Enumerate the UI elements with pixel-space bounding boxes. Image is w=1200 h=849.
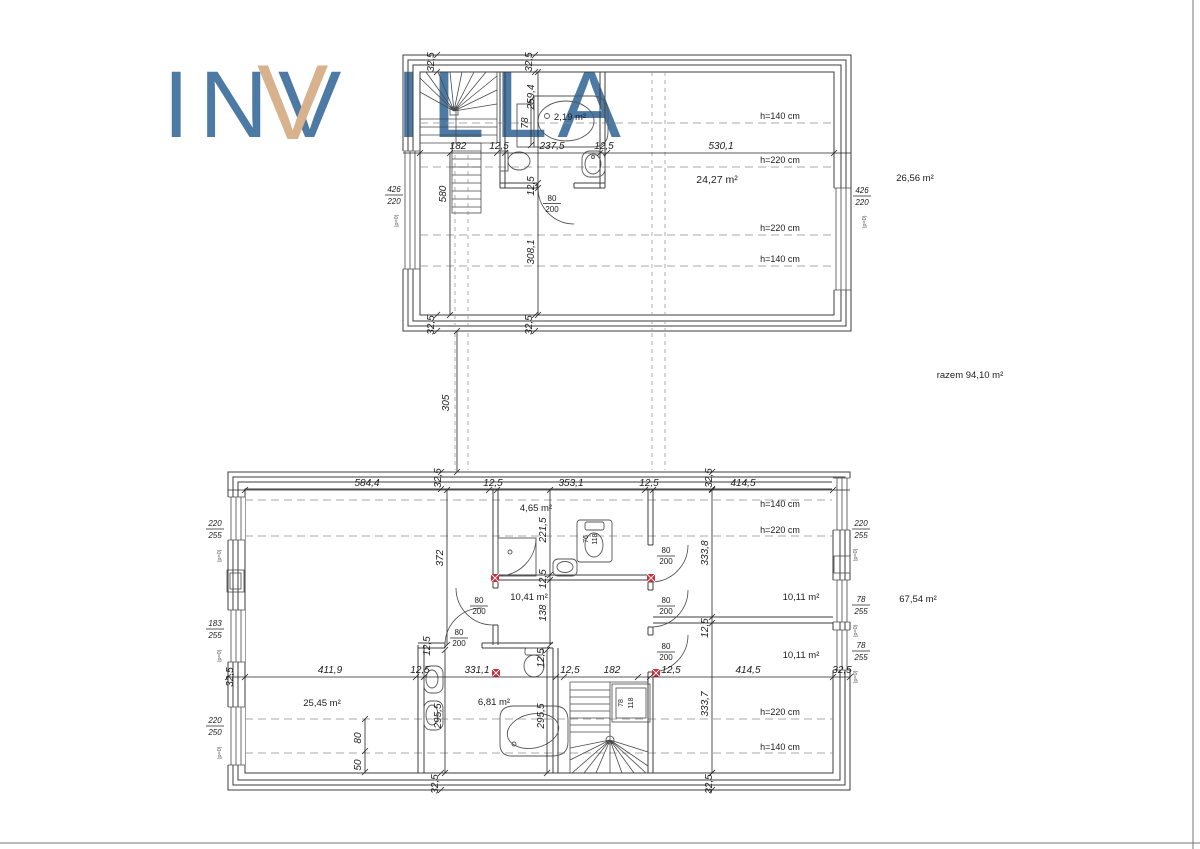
dim-wall-bot-right: 32,5 [524,315,535,335]
sink-top-bath [553,559,577,576]
wr2-h: 255 [853,653,868,662]
dim-12-5-h1: 12,5 [538,569,549,589]
area-lower-total: 67,54 m² [899,594,937,605]
d1-w: 80 [475,596,484,605]
lower-windows-right [832,478,851,670]
dim-333-7: 333,7 [700,691,711,716]
dim-32-5-tl: 32,5 [433,468,444,488]
lower-windows-left [226,497,245,765]
wl1-h: 255 [207,631,222,640]
wr1-w: 78 [857,595,866,604]
dim-333-8: 333,8 [700,540,711,565]
wr1-h: 255 [853,607,868,616]
win-l-w: 426 [387,185,401,194]
wr2-p: (p=0) [853,670,859,683]
lheight-1: h=140 cm [760,499,800,509]
dim-308-1: 308,1 [526,239,537,264]
area-living: 25,45 m² [303,698,341,709]
wr0-w: 220 [853,519,868,528]
d3-w: 80 [662,546,671,555]
shower [498,538,536,576]
dim-12-5-m1: 12,5 [410,665,430,676]
door-height: 200 [545,205,559,214]
wl2-w: 220 [207,716,222,725]
lheight-4: h=140 cm [760,742,800,752]
dim-237-5: 237,5 [538,141,564,152]
lheight-3: h=220 cm [760,707,800,717]
dim-78-tub: 78 [520,117,531,129]
d5-h: 200 [659,653,673,662]
height-label-4: h=140 cm [760,254,800,264]
d5-w: 80 [662,642,671,651]
upper-bathroom-walls [500,72,605,188]
dim-12-5: 12,5 [489,141,509,152]
red-markers [491,574,660,677]
d3-h: 200 [659,557,673,566]
dim-331-1: 331,1 [464,665,489,676]
win-l-h: 220 [386,197,401,206]
dim-12-5-h2: 12,5 [700,618,711,638]
upper-height-lines [420,123,834,266]
lower-win-right-labels: 220 255 (p=0) 78 255 (p=0) 78 255 (p=0) [852,519,870,684]
dim-80: 80 [353,732,364,744]
d2-h: 200 [452,639,466,648]
dim-353-1: 353,1 [558,478,583,489]
area-room2: 10,11 m² [783,650,820,661]
plans-connector: 305 razem 94,10 m² [441,328,1003,475]
dim-295-5-b: 295,5 [536,703,547,729]
total-area-label: razem 94,10 m² [937,370,1004,381]
d2-w: 80 [455,628,464,637]
area-bath-top: 4,65 m² [520,503,552,514]
dim-182: 182 [450,141,467,152]
dim-12-5-bw1: 12,5 [422,636,433,656]
lower-floor-plan: 584,4 12,5 353,1 12,5 414,5 32,5 32,5 22… [206,468,937,794]
area-bath-bottom: 6,81 m² [478,697,510,708]
dim-32-5-br: 32,5 [704,774,715,794]
upper-floor-plan: 32,5 32,5 259,4 78 2,19 m² 182 12,5 237,… [385,52,934,335]
dim-305: 305 [441,394,452,411]
wr2-w: 78 [857,641,866,650]
upper-window-left-label: 426 220 (p=0) [385,185,403,228]
win-r-h: 220 [854,198,869,207]
dim-12-5-bw2: 12,5 [536,648,547,668]
wl2-p: (p=0) [217,746,223,759]
d1-h: 200 [472,607,486,616]
upper-dimensions [403,52,851,334]
wl2-h: 250 [207,728,222,737]
area-room1: 10,11 m² [783,592,820,603]
dim-32-5-tr: 32,5 [704,468,715,488]
dim-32-5-left: 32,5 [225,667,236,687]
wl0-h: 255 [207,531,222,540]
dim-wall-bot-left: 32,5 [426,315,437,335]
area-upper-bath: 2,19 m² [554,112,586,123]
dim-12-5-t2: 12,5 [639,478,659,489]
win-l-p0: (p=0) [394,214,400,227]
area-attic: 24,27 m² [696,174,738,186]
win-r-p0: (p=0) [862,215,868,228]
dim-580: 580 [438,185,449,202]
door-labels: 80 200 80 200 80 200 80 200 80 200 [450,546,675,662]
dim-372: 372 [435,549,446,566]
dim-wall-top-right: 32,5 [524,52,535,72]
upper-window-right [833,188,851,290]
dim-414-5-t: 414,5 [730,478,755,489]
wl1-p: (p=0) [217,649,223,662]
d4-w: 80 [662,596,671,605]
floorplan-sheet: IN V V ILLA [0,0,1200,849]
d4-h: 200 [659,607,673,616]
dim-414-5-m: 414,5 [735,665,760,676]
area-upper-total: 26,56 m² [896,173,934,184]
dim-wall-top-left: 32,5 [426,52,437,72]
wl1-w: 183 [208,619,222,628]
upper-window-left [401,151,420,269]
wr0-p: (p=0) [853,548,859,561]
wl0-p: (p=0) [217,549,223,562]
height-label-1: h=140 cm [760,111,800,121]
floorplan-drawing: 32,5 32,5 259,4 78 2,19 m² 182 12,5 237,… [0,0,1200,849]
toilet-w: 76 [583,535,590,543]
dim-295-5-a: 295,5 [433,703,444,729]
dim-50: 50 [353,759,364,771]
lower-win-left-labels: 220 255 (p=0) 183 255 (p=0) 220 250 (p=0… [206,519,224,760]
win-r-w: 426 [855,186,869,195]
dim-32-5-m: 32,5 [832,665,852,676]
dim-12-5-m3: 12,5 [661,665,681,676]
dim-32-5-bl: 32,5 [430,774,441,794]
dim-182-l: 182 [604,665,621,676]
wr0-h: 255 [853,531,868,540]
closet-h: 118 [628,697,635,708]
closet-w: 78 [618,699,625,707]
area-hall: 10,41 m² [510,592,548,603]
dim-12-5-t1: 12,5 [483,478,503,489]
wr1-p: (p=0) [853,624,859,637]
lheight-2: h=220 cm [760,525,800,535]
dim-12-5-m2: 12,5 [560,665,580,676]
height-label-3: h=220 cm [760,223,800,233]
dim-411-9: 411,9 [318,665,343,676]
upper-sink [582,151,605,177]
height-label-2: h=220 cm [760,155,800,165]
dim-138: 138 [538,604,549,621]
dim-12-5b: 12,5 [594,141,614,152]
upper-window-right-label: 426 220 (p=0) [853,186,871,229]
toilet-h: 118 [592,533,599,544]
lower-staircase [570,682,650,773]
dim-259-4: 259,4 [526,84,537,110]
door-width: 80 [548,194,557,203]
upper-door-label: 80 200 [543,194,561,214]
dim-530-1: 530,1 [708,141,733,152]
wl0-w: 220 [207,519,222,528]
upper-outer-walls [403,55,851,331]
dim-221-5: 221,5 [538,517,549,543]
dim-584-4: 584,4 [354,478,379,489]
logo-checkmark-v-icon: V [257,49,328,156]
dim-12-5-wall: 12,5 [526,176,537,196]
